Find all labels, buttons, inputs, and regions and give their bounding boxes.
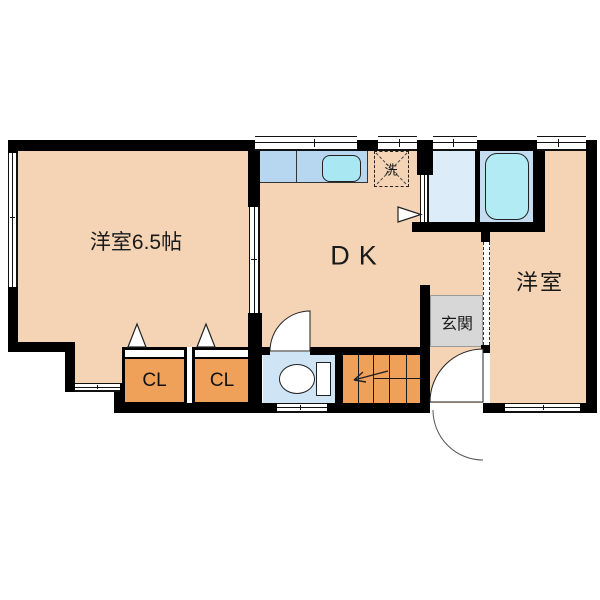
room-western-right-floor-upper — [545, 151, 586, 232]
wall-segment — [248, 313, 262, 412]
wall-segment — [586, 140, 597, 413]
window — [8, 153, 18, 287]
counter-divider-line — [296, 151, 297, 182]
room-label-western-left: 洋室6.5帖 — [90, 226, 182, 256]
kitchen-sink — [322, 155, 361, 182]
stair-step-line — [406, 355, 407, 403]
wall-segment — [417, 140, 433, 175]
closet-door-strip — [125, 350, 184, 359]
wall-segment — [475, 150, 480, 222]
kitchen-counter — [257, 150, 368, 183]
wall-segment — [483, 403, 505, 413]
wall-segment — [65, 342, 75, 392]
window — [378, 136, 417, 151]
sliding-door-opening — [249, 207, 260, 313]
wall-segment — [580, 403, 597, 413]
room-western-right-floor — [490, 232, 586, 403]
stair-step-line — [373, 355, 374, 403]
wall-segment — [357, 140, 378, 151]
wall-segment — [420, 285, 430, 403]
sliding-door-dashed — [483, 242, 490, 345]
closet-1: CL — [122, 347, 187, 405]
closet-door-strip — [195, 350, 249, 359]
room-label-dk: DK — [330, 241, 386, 272]
room-western-left-floor-notch — [75, 342, 125, 384]
room-label-entrance: 玄関 — [441, 310, 473, 334]
stair-landing-line — [373, 378, 422, 379]
staircase — [343, 355, 422, 403]
wall-segment — [481, 345, 490, 353]
entrance-door-swing-outer — [433, 410, 483, 460]
wall-segment — [335, 352, 343, 403]
wall-segment — [481, 232, 490, 242]
stair-step-line — [389, 355, 390, 403]
washroom-doorway — [420, 175, 429, 222]
bathtub — [485, 153, 529, 220]
hallway-floor — [430, 232, 483, 295]
wall-segment — [8, 140, 255, 151]
window — [255, 136, 357, 151]
stair-step-line — [358, 355, 359, 403]
closet-2: CL — [192, 347, 252, 405]
label-washer: 洗 — [384, 160, 397, 179]
closet-1-label: CL — [125, 359, 184, 402]
wall-segment — [327, 403, 430, 413]
room-label-western-right: 洋室 — [516, 265, 564, 297]
window — [537, 136, 586, 151]
washroom-floor — [428, 151, 475, 222]
floorplan-canvas: CL CL 洋 — [0, 0, 600, 600]
window — [75, 383, 120, 392]
window — [505, 403, 580, 413]
closet-2-label: CL — [195, 359, 249, 402]
window — [277, 403, 327, 413]
toilet-bowl — [279, 364, 315, 394]
wall-segment — [262, 347, 270, 355]
wall-segment — [310, 347, 430, 355]
wall-segment — [533, 140, 545, 232]
toilet-tank — [316, 362, 331, 396]
entrance-vestibule-floor — [430, 347, 483, 403]
wall-segment — [477, 140, 537, 151]
wall-segment — [412, 222, 540, 232]
window — [433, 136, 477, 151]
